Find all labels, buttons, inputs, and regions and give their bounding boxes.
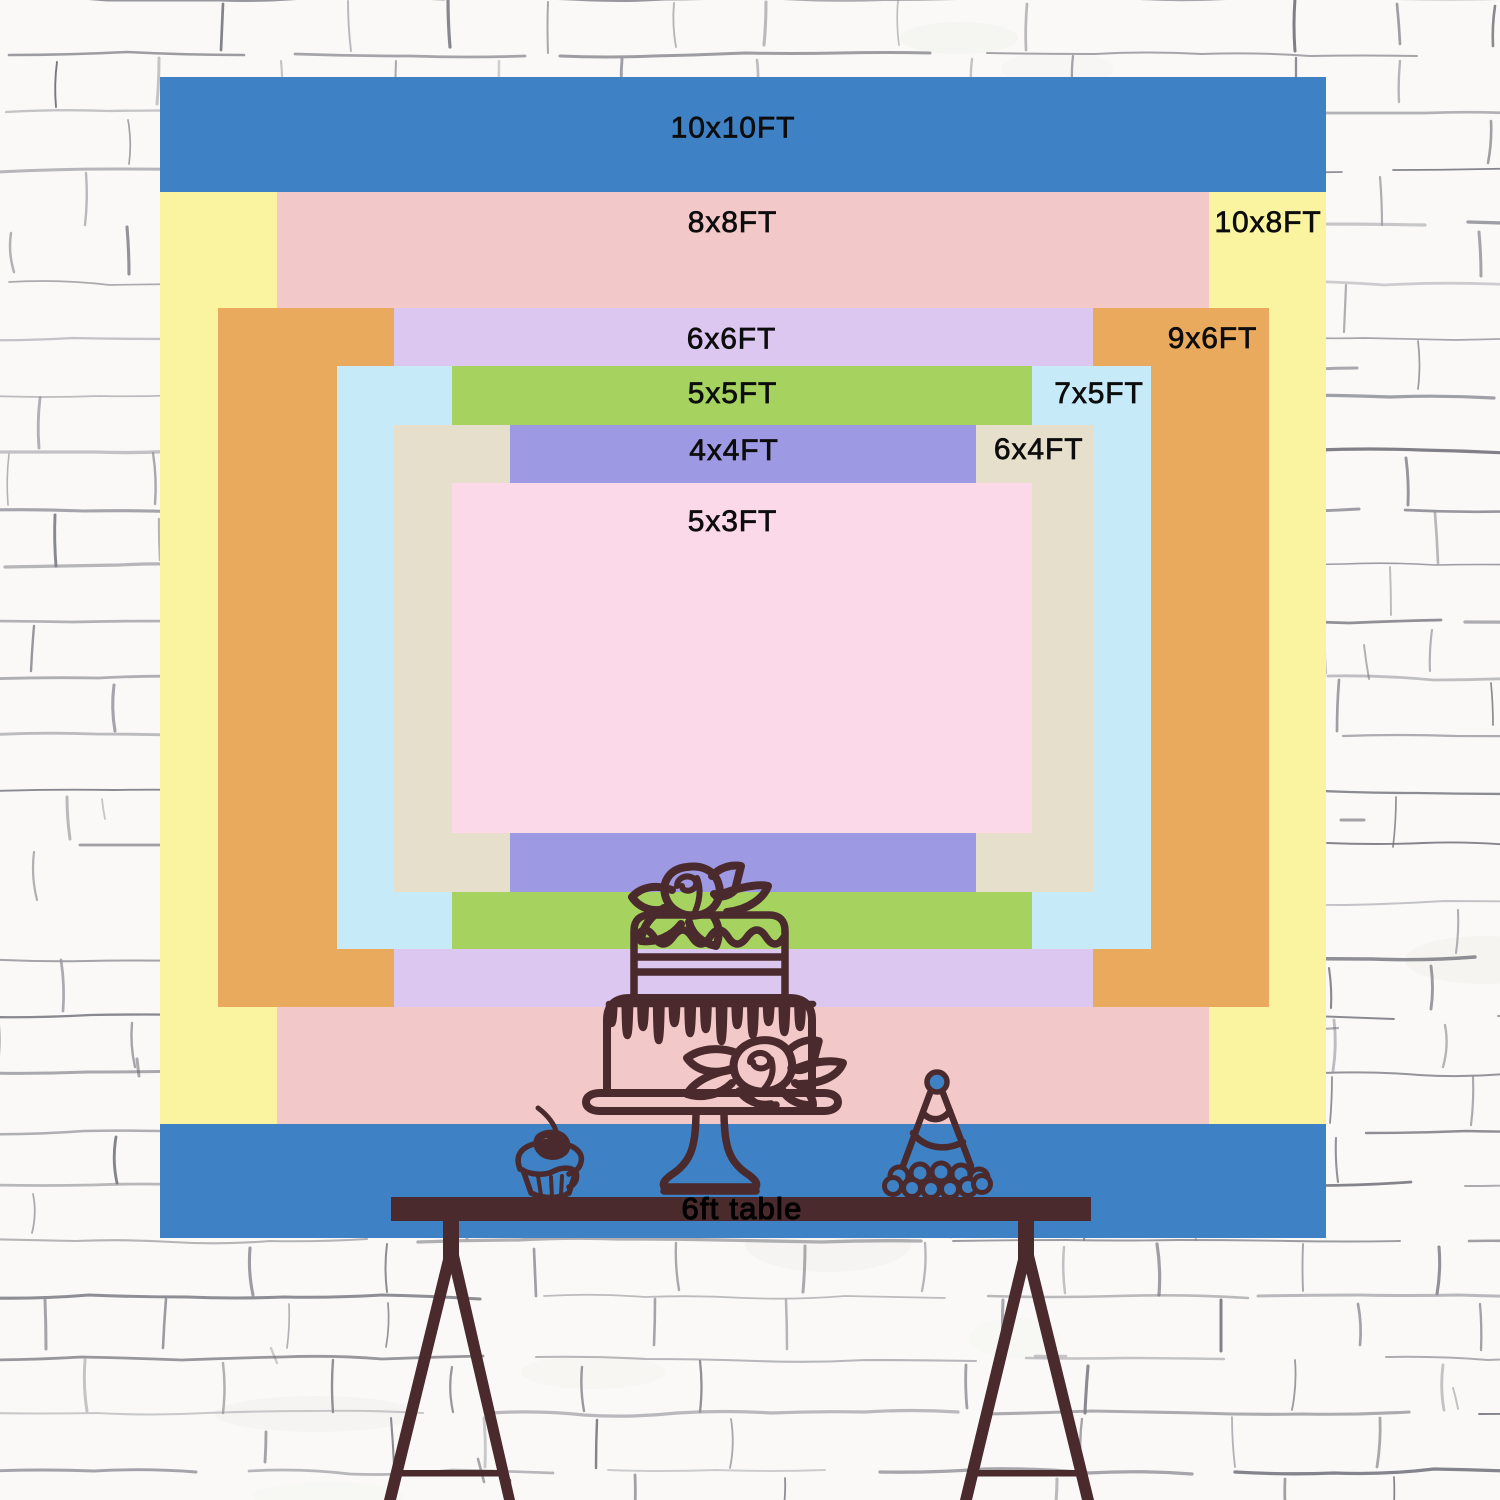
svg-text:10x8FT: 10x8FT [1214, 206, 1321, 239]
svg-text:7x5FT: 7x5FT [1054, 377, 1144, 410]
svg-text:6ft table: 6ft table [681, 1191, 802, 1226]
svg-text:5x3FT: 5x3FT [688, 505, 778, 538]
svg-text:6x6FT: 6x6FT [687, 323, 777, 356]
svg-text:8x8FT: 8x8FT [688, 206, 778, 239]
svg-text:9x6FT: 9x6FT [1168, 322, 1258, 355]
svg-text:6x4FT: 6x4FT [994, 433, 1084, 466]
svg-text:10x10FT: 10x10FT [671, 112, 796, 145]
svg-text:5x5FT: 5x5FT [688, 377, 778, 410]
svg-text:4x4FT: 4x4FT [689, 434, 779, 467]
